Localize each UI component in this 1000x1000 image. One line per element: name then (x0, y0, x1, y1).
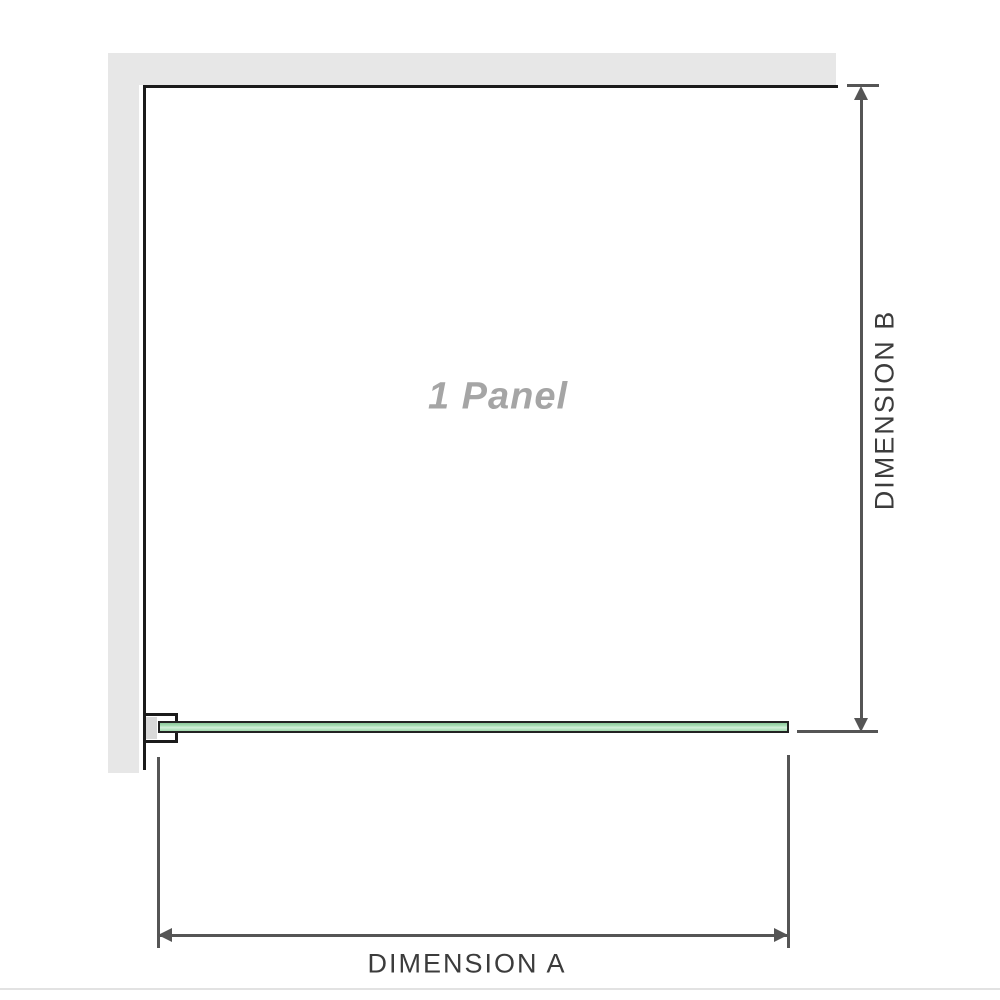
dimension-a-line (158, 934, 788, 937)
shower-screen-diagram: 1 Panel DIMENSION B DIMENSION A (0, 0, 1000, 1000)
panel-outline-left (143, 85, 146, 770)
dimension-b-label: DIMENSION B (870, 310, 901, 511)
arrow-right-icon (774, 928, 788, 942)
arrow-down-icon (854, 718, 868, 732)
dimension-a-extension-left (157, 757, 160, 948)
panel-outline-top (143, 85, 838, 88)
bracket-wall-insert (146, 717, 157, 739)
arrow-up-icon (854, 86, 868, 100)
dimension-a-label: DIMENSION A (367, 949, 566, 980)
page-divider (0, 988, 1000, 990)
arrow-left-icon (158, 928, 172, 942)
wall-top (108, 53, 836, 85)
dimension-b-line (860, 98, 863, 719)
dimension-a-extension-right (787, 755, 790, 948)
wall-left (108, 53, 139, 773)
glass-panel (158, 721, 789, 733)
panel-count-label: 1 Panel (428, 376, 568, 419)
